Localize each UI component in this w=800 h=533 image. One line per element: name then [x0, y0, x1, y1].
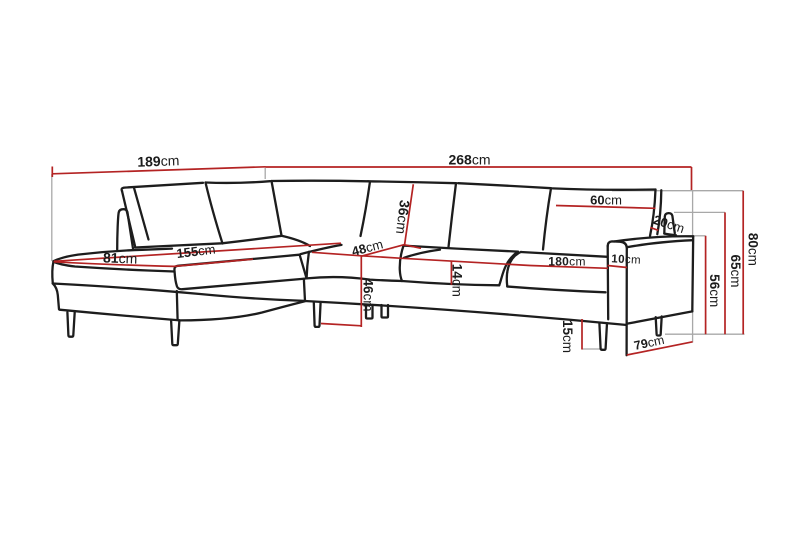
- svg-text:10cm: 10cm: [611, 253, 641, 267]
- svg-text:15cm: 15cm: [560, 320, 575, 353]
- svg-text:56cm: 56cm: [707, 274, 722, 307]
- svg-text:80cm: 80cm: [746, 233, 761, 266]
- svg-text:81cm: 81cm: [103, 249, 138, 266]
- svg-text:60cm: 60cm: [590, 192, 622, 207]
- svg-text:14cm: 14cm: [449, 264, 464, 297]
- svg-text:180cm: 180cm: [548, 254, 586, 268]
- svg-text:189cm: 189cm: [137, 152, 180, 169]
- svg-text:268cm: 268cm: [448, 151, 490, 167]
- svg-text:65cm: 65cm: [728, 254, 743, 287]
- svg-text:46cm: 46cm: [360, 278, 375, 311]
